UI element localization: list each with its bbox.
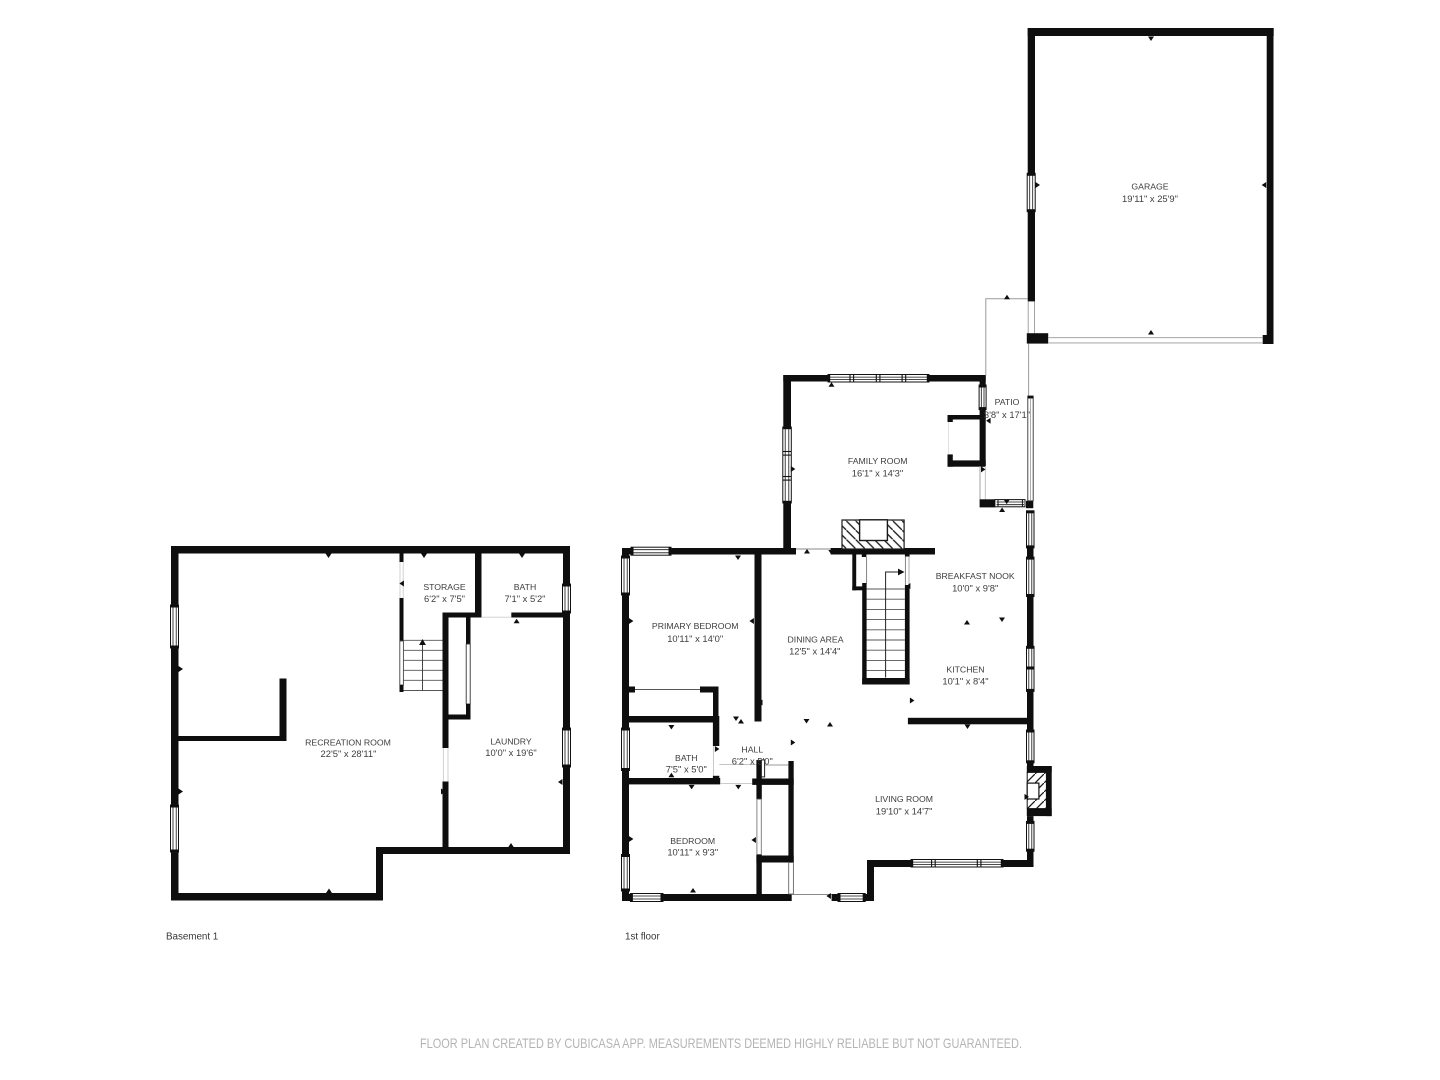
svg-text:GARAGE: GARAGE xyxy=(1131,182,1168,192)
svg-text:10'11" x 9'3": 10'11" x 9'3" xyxy=(667,847,718,858)
svg-text:DINING AREA: DINING AREA xyxy=(788,635,844,645)
svg-text:3'8" x 17'1": 3'8" x 17'1" xyxy=(984,409,1030,420)
svg-text:RECREATION ROOM: RECREATION ROOM xyxy=(305,738,391,748)
svg-text:FLOOR PLAN CREATED BY CUBICASA: FLOOR PLAN CREATED BY CUBICASA APP. MEAS… xyxy=(420,1036,1022,1051)
svg-text:22'5" x 28'11": 22'5" x 28'11" xyxy=(321,748,377,759)
svg-text:19'11" x 25'9": 19'11" x 25'9" xyxy=(1122,193,1178,204)
svg-text:BREAKFAST NOOK: BREAKFAST NOOK xyxy=(936,571,1015,581)
svg-text:BATH: BATH xyxy=(675,753,698,763)
svg-text:6'2" x 7'5": 6'2" x 7'5" xyxy=(424,593,465,604)
svg-text:10'0" x 19'6": 10'0" x 19'6" xyxy=(485,747,536,758)
svg-text:6'2" x 5'0": 6'2" x 5'0" xyxy=(732,756,773,767)
svg-text:Basement 1: Basement 1 xyxy=(166,932,219,943)
svg-text:12'5" x 14'4": 12'5" x 14'4" xyxy=(789,646,840,657)
svg-text:1st floor: 1st floor xyxy=(625,932,660,943)
svg-text:KITCHEN: KITCHEN xyxy=(946,665,984,675)
svg-text:PATIO: PATIO xyxy=(995,397,1020,407)
svg-text:10'0" x 9'8": 10'0" x 9'8" xyxy=(952,583,998,594)
svg-text:FAMILY ROOM: FAMILY ROOM xyxy=(848,456,908,466)
svg-text:LAUNDRY: LAUNDRY xyxy=(490,737,532,747)
svg-text:10'1" x 8'4": 10'1" x 8'4" xyxy=(942,676,988,687)
svg-text:10'11" x 14'0": 10'11" x 14'0" xyxy=(667,633,723,644)
svg-text:STORAGE: STORAGE xyxy=(423,582,466,592)
svg-text:PRIMARY BEDROOM: PRIMARY BEDROOM xyxy=(652,621,739,631)
svg-text:HALL: HALL xyxy=(741,744,763,754)
svg-text:7'5" x 5'0": 7'5" x 5'0" xyxy=(666,764,707,775)
svg-text:BATH: BATH xyxy=(514,582,537,592)
svg-text:LIVING ROOM: LIVING ROOM xyxy=(875,794,933,804)
svg-text:16'1" x 14'3": 16'1" x 14'3" xyxy=(852,468,903,479)
svg-text:7'1" x 5'2": 7'1" x 5'2" xyxy=(505,593,546,604)
svg-text:BEDROOM: BEDROOM xyxy=(670,836,715,846)
svg-text:19'10" x 14'7": 19'10" x 14'7" xyxy=(876,806,933,817)
